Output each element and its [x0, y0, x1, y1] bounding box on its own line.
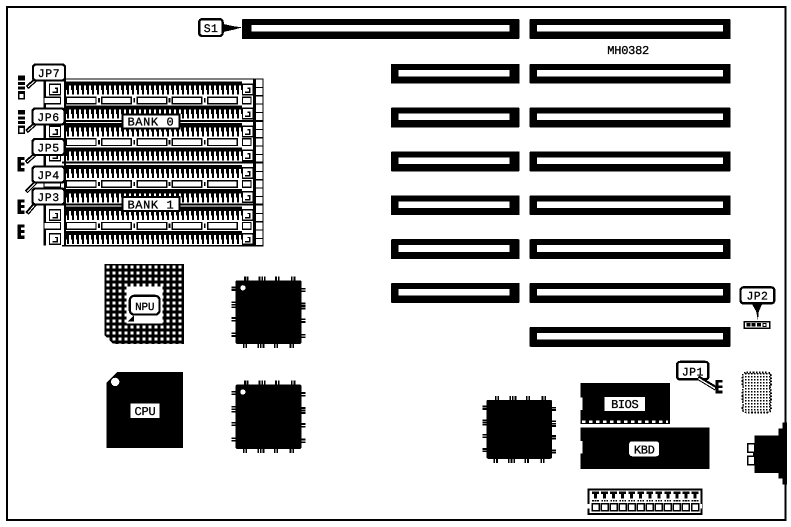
svg-text:MH0382: MH0382 — [607, 44, 649, 58]
svg-text:BIOS: BIOS — [611, 398, 638, 412]
svg-text:NPU: NPU — [135, 302, 154, 314]
svg-text:KBD: KBD — [634, 443, 655, 457]
svg-text:JP3: JP3 — [37, 192, 60, 205]
svg-text:JP7: JP7 — [38, 68, 61, 81]
svg-text:BANK 1: BANK 1 — [127, 198, 174, 212]
svg-text:JP4: JP4 — [37, 170, 60, 183]
svg-text:JP6: JP6 — [37, 112, 60, 125]
svg-text:BANK 0: BANK 0 — [127, 116, 174, 130]
svg-text:CPU: CPU — [134, 405, 155, 419]
svg-text:JP5: JP5 — [37, 143, 60, 156]
svg-text:JP2: JP2 — [746, 291, 768, 304]
svg-text:S1: S1 — [204, 23, 218, 36]
